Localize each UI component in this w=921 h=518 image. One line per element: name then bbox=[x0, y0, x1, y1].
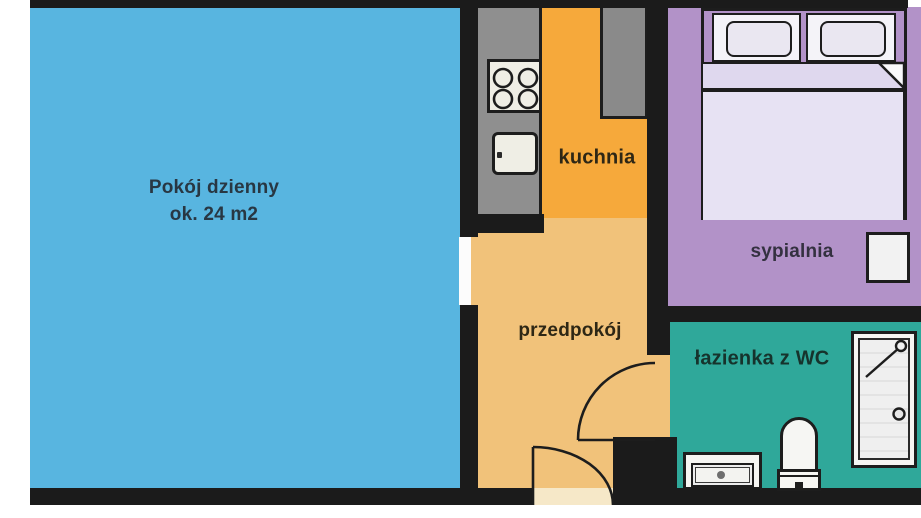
wall-living-hallway bbox=[460, 304, 478, 490]
wall-bottom-left bbox=[30, 488, 533, 505]
bathtub-basin bbox=[858, 338, 910, 460]
kitchen-label: kuchnia bbox=[559, 147, 636, 170]
nightstand bbox=[866, 232, 910, 283]
living-doorway-floor bbox=[471, 237, 478, 305]
wall-kitchen-bedroom bbox=[647, 0, 668, 353]
toilet-notch bbox=[795, 482, 803, 491]
kitchen-sink-handle bbox=[497, 152, 502, 158]
mattress bbox=[703, 90, 905, 220]
hallway-label: przedpokój bbox=[518, 320, 621, 342]
pillow-right-icon bbox=[820, 21, 886, 57]
living-room-label-line1: Pokój dzienny bbox=[149, 174, 279, 201]
room-living bbox=[30, 7, 460, 488]
entrance-threshold bbox=[533, 488, 613, 505]
tall-cabinet-icon bbox=[600, 7, 648, 119]
living-room-label: Pokój dzienny ok. 24 m2 bbox=[149, 174, 279, 228]
wall-bottom-right bbox=[613, 488, 921, 505]
toilet-tank-line bbox=[780, 475, 818, 477]
living-room-doorway bbox=[459, 237, 471, 305]
wall-bathroom-left-upper bbox=[647, 322, 670, 355]
bathroom-doorway-floor bbox=[647, 355, 670, 437]
toilet-icon bbox=[780, 417, 818, 474]
wall-under-counter bbox=[478, 214, 544, 233]
wall-living-kitchen bbox=[460, 0, 478, 238]
stove-icon bbox=[487, 59, 542, 113]
bathroom-label: łazienka z WC bbox=[695, 348, 830, 371]
blanket bbox=[703, 62, 905, 90]
bedroom-label: sypialnia bbox=[750, 241, 833, 263]
floorplan: Pokój dzienny ok. 24 m2 kuchnia przedpok… bbox=[0, 0, 921, 518]
pillow-left-icon bbox=[726, 21, 792, 57]
washbasin-drain bbox=[717, 471, 725, 479]
living-room-label-line2: ok. 24 m2 bbox=[149, 201, 279, 228]
wall-bedroom-bathroom bbox=[660, 306, 921, 322]
